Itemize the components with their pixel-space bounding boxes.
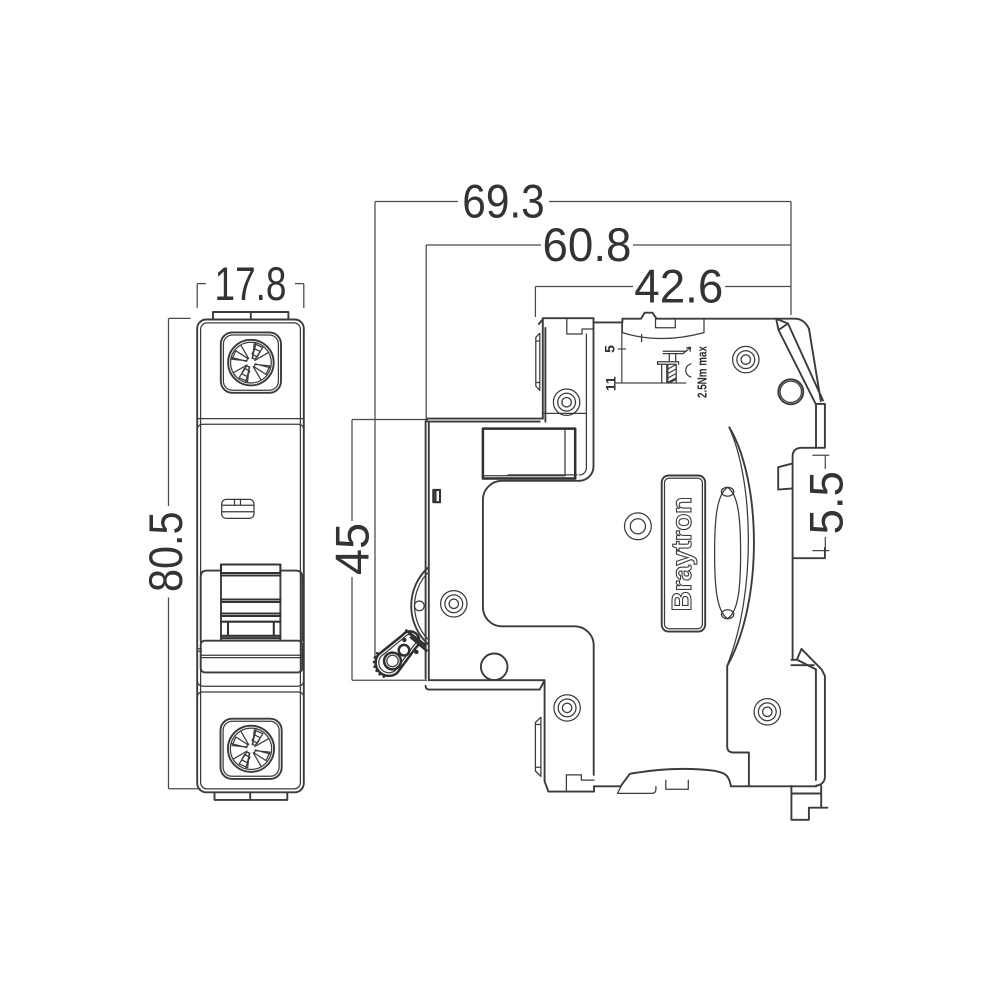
svg-text:5: 5 xyxy=(602,345,618,353)
svg-text:Braytron: Braytron xyxy=(666,497,697,611)
svg-text:5.5: 5.5 xyxy=(800,471,853,535)
svg-text:2.5Nm max: 2.5Nm max xyxy=(696,346,710,398)
svg-text:11: 11 xyxy=(603,376,619,391)
svg-text:42.6: 42.6 xyxy=(634,260,723,313)
svg-text:45: 45 xyxy=(326,523,379,575)
svg-text:60.8: 60.8 xyxy=(543,218,632,271)
svg-text:69.3: 69.3 xyxy=(462,175,545,228)
svg-text:80.5: 80.5 xyxy=(139,511,192,592)
svg-text:17.8: 17.8 xyxy=(215,257,287,310)
